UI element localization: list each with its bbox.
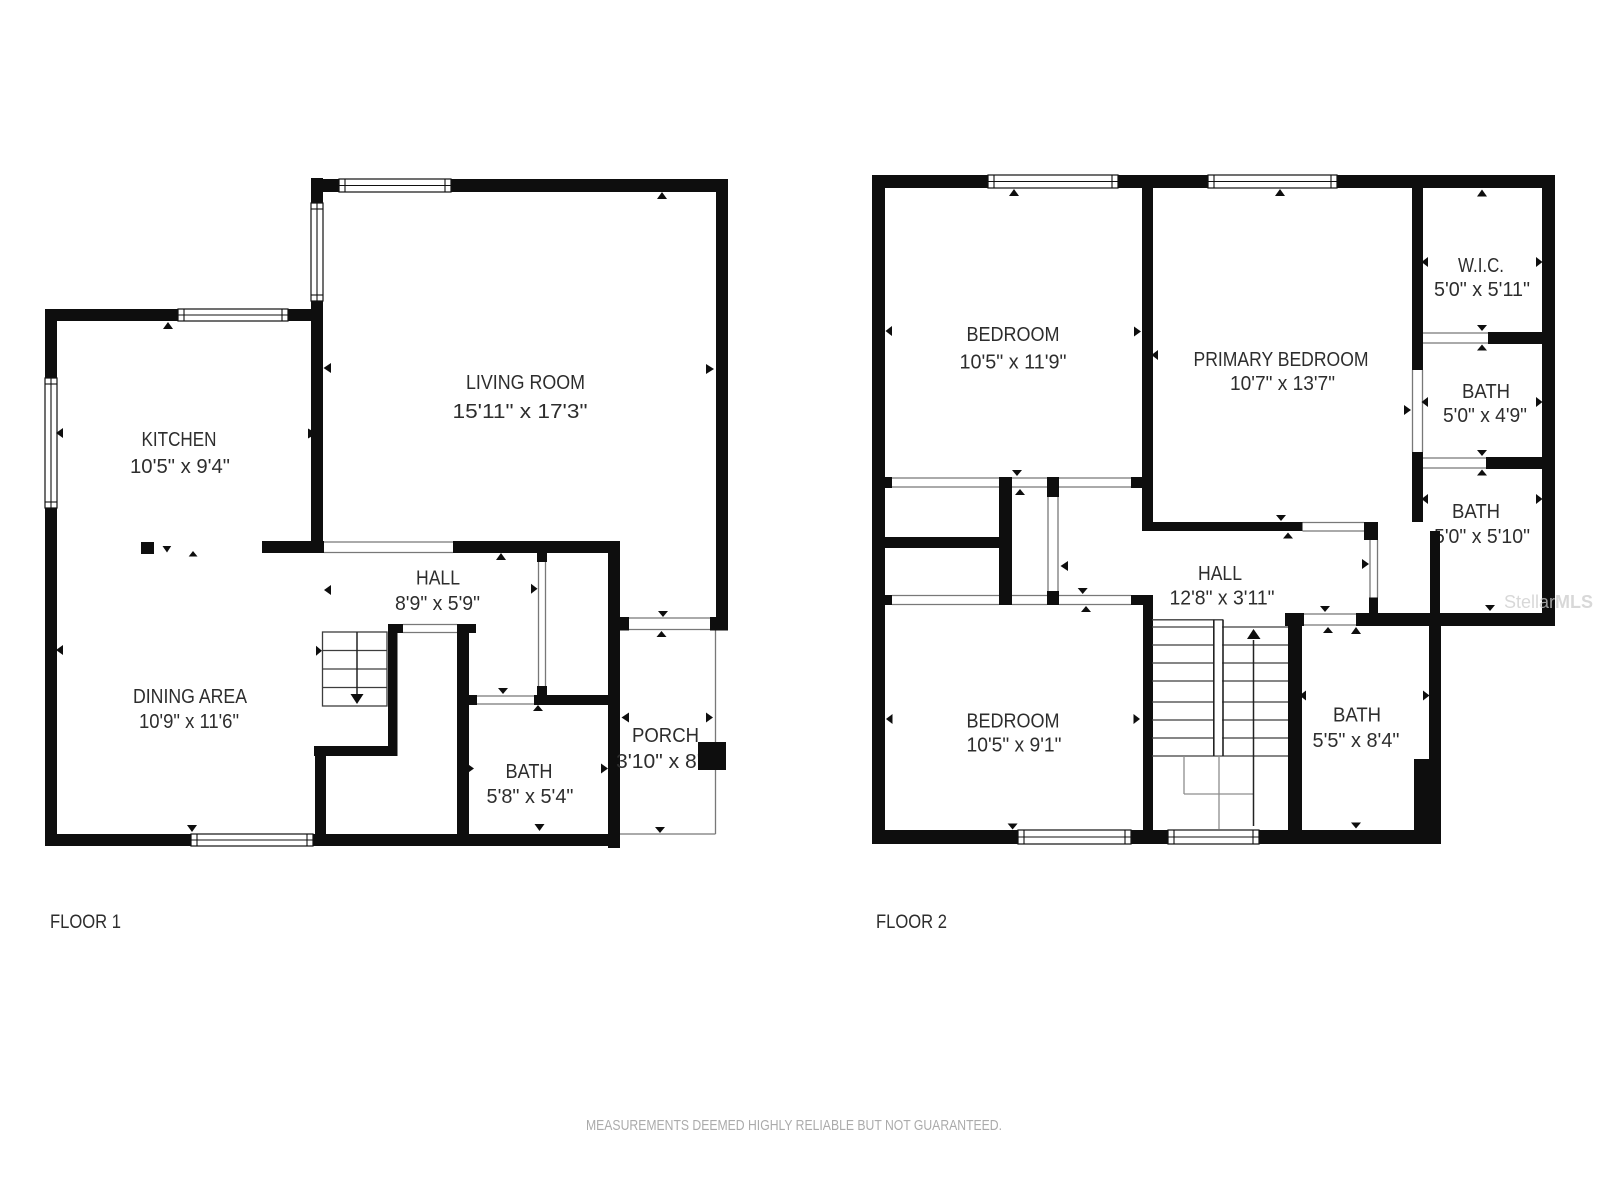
svg-text:15'11" x 17'3": 15'11" x 17'3" xyxy=(453,401,588,423)
svg-text:LIVING ROOM: LIVING ROOM xyxy=(466,372,585,394)
svg-text:HALL: HALL xyxy=(1198,563,1242,585)
svg-text:BEDROOM: BEDROOM xyxy=(967,711,1060,733)
svg-text:10'7" x 13'7": 10'7" x 13'7" xyxy=(1230,373,1335,395)
svg-text:BEDROOM: BEDROOM xyxy=(967,324,1060,346)
svg-text:FLOOR 1: FLOOR 1 xyxy=(50,912,121,933)
svg-text:PRIMARY BEDROOM: PRIMARY BEDROOM xyxy=(1194,349,1369,371)
svg-text:W.I.C.: W.I.C. xyxy=(1458,255,1504,277)
svg-text:MEASUREMENTS DEEMED HIGHLY REL: MEASUREMENTS DEEMED HIGHLY RELIABLE BUT … xyxy=(586,1118,1002,1134)
svg-text:FLOOR 2: FLOOR 2 xyxy=(876,912,947,933)
svg-text:BATH: BATH xyxy=(1462,381,1510,403)
svg-text:PORCH: PORCH xyxy=(632,725,699,747)
svg-text:12'8" x 3'11": 12'8" x 3'11" xyxy=(1170,588,1275,610)
svg-text:StellarMLS: StellarMLS xyxy=(1504,592,1593,612)
svg-text:BATH: BATH xyxy=(1333,704,1381,726)
svg-text:10'5" x 9'4": 10'5" x 9'4" xyxy=(130,456,230,478)
svg-text:10'5" x 11'9": 10'5" x 11'9" xyxy=(960,352,1067,374)
svg-text:5'5" x 8'4": 5'5" x 8'4" xyxy=(1313,730,1400,752)
svg-text:DINING AREA: DINING AREA xyxy=(133,686,248,708)
svg-text:10'9" x 11'6": 10'9" x 11'6" xyxy=(139,711,239,733)
svg-text:5'0" x 5'11": 5'0" x 5'11" xyxy=(1434,279,1530,301)
svg-text:KITCHEN: KITCHEN xyxy=(142,429,217,451)
svg-text:BATH: BATH xyxy=(1452,501,1500,523)
svg-text:BATH: BATH xyxy=(506,761,553,783)
svg-text:8'9" x 5'9": 8'9" x 5'9" xyxy=(395,593,480,615)
svg-text:10'5" x 9'1": 10'5" x 9'1" xyxy=(967,735,1062,757)
svg-text:5'0" x 5'10": 5'0" x 5'10" xyxy=(1434,526,1530,548)
svg-text:HALL: HALL xyxy=(416,568,460,590)
svg-text:5'0" x 4'9": 5'0" x 4'9" xyxy=(1443,405,1527,427)
svg-text:5'8" x 5'4": 5'8" x 5'4" xyxy=(487,786,574,808)
